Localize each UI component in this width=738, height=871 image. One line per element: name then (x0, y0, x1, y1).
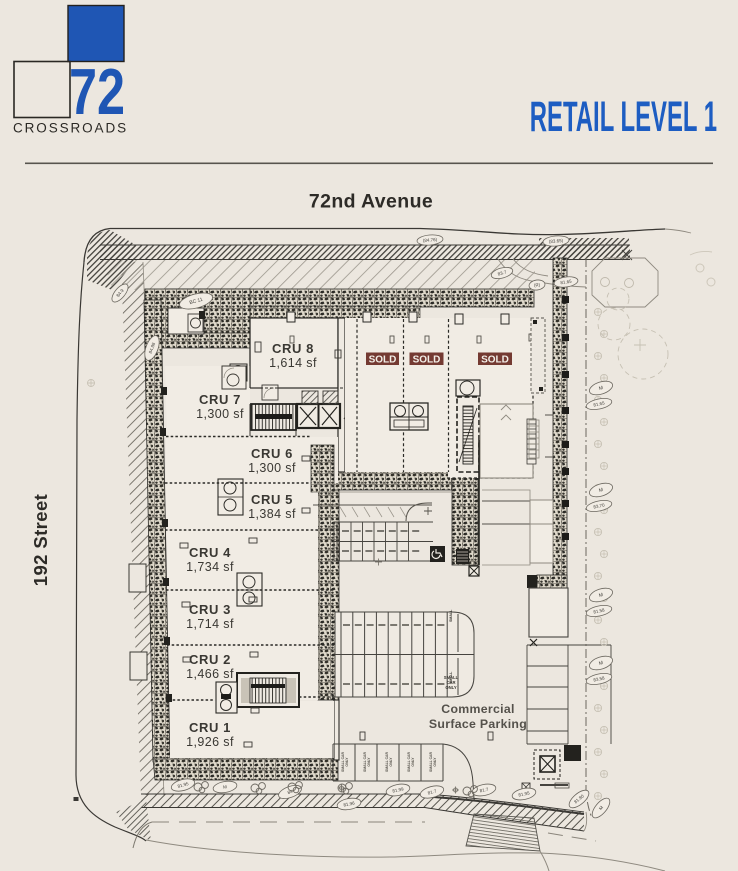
svg-text:CRU 3: CRU 3 (189, 602, 231, 617)
svg-text:CRU 5: CRU 5 (251, 492, 293, 507)
svg-text:(R): (R) (534, 282, 541, 288)
svg-text:1,466 sf: 1,466 sf (186, 667, 234, 681)
svg-text:Commercial: Commercial (441, 702, 514, 716)
svg-text:1,384 sf: 1,384 sf (248, 507, 296, 521)
svg-text:CROSSROADS: CROSSROADS (13, 121, 128, 136)
svg-text:ONLY: ONLY (345, 757, 349, 767)
svg-text:SOLD: SOLD (369, 355, 397, 366)
svg-text:SOLD: SOLD (481, 355, 509, 366)
svg-text:SMALL: SMALL (449, 609, 453, 622)
svg-text:ONLY: ONLY (367, 757, 371, 767)
svg-text:ONLY: ONLY (411, 757, 415, 767)
svg-text:72nd Avenue: 72nd Avenue (309, 191, 433, 213)
svg-text:CRU 1: CRU 1 (189, 720, 231, 735)
svg-text:1,734 sf: 1,734 sf (186, 560, 234, 574)
svg-text:RETAIL LEVEL 1: RETAIL LEVEL 1 (530, 94, 717, 141)
svg-text:1,300 sf: 1,300 sf (248, 461, 296, 475)
svg-text:ONLY: ONLY (433, 757, 437, 767)
svg-text:CRU 7: CRU 7 (199, 392, 241, 407)
svg-text:1,714 sf: 1,714 sf (186, 617, 234, 631)
svg-text:72: 72 (69, 56, 125, 129)
svg-text:CRU 6: CRU 6 (251, 446, 293, 461)
svg-text:ONLY: ONLY (445, 685, 456, 690)
svg-text:CRU 2: CRU 2 (189, 652, 231, 667)
svg-text:1,300 sf: 1,300 sf (196, 407, 244, 421)
svg-text:ONLY: ONLY (389, 757, 393, 767)
svg-text:SOLD: SOLD (413, 355, 441, 366)
svg-text:Surface Parking: Surface Parking (429, 717, 527, 731)
svg-text:1,614 sf: 1,614 sf (269, 356, 317, 370)
svg-text:CRU 4: CRU 4 (189, 545, 231, 560)
svg-text:1,926 sf: 1,926 sf (186, 735, 234, 749)
svg-text:192 Street: 192 Street (30, 494, 51, 586)
